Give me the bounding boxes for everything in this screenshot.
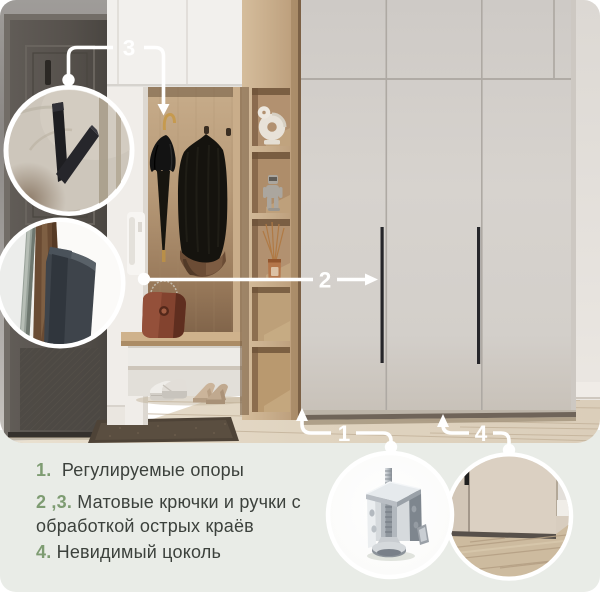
svg-text:4: 4 — [475, 421, 488, 446]
svg-text:3: 3 — [123, 36, 136, 61]
svg-text:1: 1 — [338, 421, 351, 446]
svg-text:2: 2 — [319, 268, 332, 293]
